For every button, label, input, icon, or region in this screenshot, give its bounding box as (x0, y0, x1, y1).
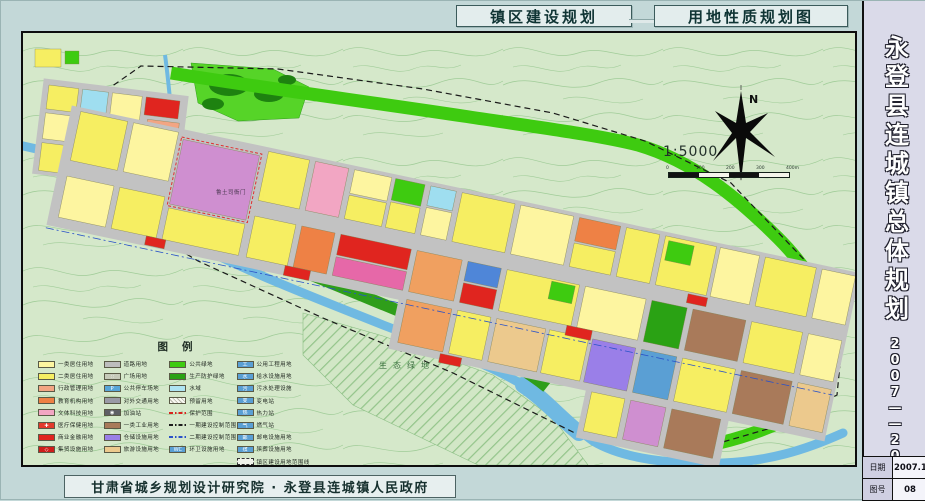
legend-column: 工公用工程用地水给水设施用地污污水处理设施变变电站热热力站气燃气站邮邮电设施用地… (237, 358, 313, 467)
legend-item: 镇区建设用地范围线 (237, 456, 313, 468)
legend-label: 二期建设控制范围 (189, 433, 236, 441)
legend-item: ∷广场用地 (104, 370, 170, 382)
legend-label: 行政管理用地 (58, 384, 93, 392)
scale-tick: 100 (696, 166, 705, 171)
scale-text: 1:5000 (663, 144, 718, 160)
legend-swatch: 污 (237, 385, 254, 392)
heritage-label: 鲁土司衙门 (216, 188, 246, 196)
legend-label: 公用工程用地 (257, 360, 292, 368)
legend-label: 公共停车场地 (124, 384, 159, 392)
legend-item: 殡殡葬设施用地 (237, 443, 313, 455)
plan-title-vertical: 永登县连城镇总体规划 (878, 35, 913, 325)
legend-swatch: 热 (237, 409, 254, 416)
scale-bar-segments (668, 172, 790, 178)
legend-swatch: ◉ (104, 409, 121, 416)
legend-item: 变变电站 (237, 395, 313, 407)
legend-swatch (104, 434, 121, 441)
legend-item: 工公用工程用地 (237, 358, 313, 370)
title-right-box: 用地性质规划图 (654, 5, 848, 27)
legend-item: 预留用地 (169, 395, 236, 407)
legend-column: 道路用地∷广场用地P公共停车场地对外交通用地◉加油站一类工业用地仓储设施用地旅游… (104, 358, 170, 467)
legend-item: 一类工业用地 (104, 419, 170, 431)
legend-swatch (104, 446, 121, 453)
legend-label: 二类居住用地 (58, 372, 93, 380)
legend-column: 公共绿地生产防护绿地水域预留用地保护范围一期建设控制范围二期建设控制范围WC环卫… (169, 358, 236, 467)
legend-item: 仓储设施用地 (104, 431, 170, 443)
sheet-number-label: 图号 (863, 479, 893, 501)
legend-swatch (169, 385, 186, 392)
scale-tick: 200 (726, 166, 735, 171)
legend-label: 生产防护绿地 (189, 372, 224, 380)
scale-bar-ticks: 0100200300400m (668, 166, 792, 172)
legend-swatch: 水 (237, 373, 254, 380)
legend-label: 教育机构用地 (58, 397, 93, 405)
legend-label: 一类工业用地 (124, 421, 159, 429)
sheet-info-table: 日期 2007.11 图号 08 (862, 456, 925, 501)
legend-swatch (104, 422, 121, 429)
legend-item: WC环卫设施用地 (169, 443, 236, 455)
legend-label: 保护范围 (189, 409, 213, 417)
eco-green-label: 生态绿地 (379, 360, 435, 371)
legend-swatch (237, 458, 254, 465)
legend-title: 图例 (38, 339, 312, 354)
legend-label: 燃气站 (257, 421, 275, 429)
legend-item: ◉加油站 (104, 407, 170, 419)
legend-column: 一类居住用地二类居住用地行政管理用地教育机构用地文体科技用地✚医疗保健用地商业金… (38, 358, 104, 467)
legend-label: 医疗保健用地 (58, 421, 93, 429)
legend-swatch: P (104, 385, 121, 392)
legend-label: 环卫设施用地 (189, 445, 224, 453)
legend-item: 污污水处理设施 (237, 382, 313, 394)
legend-label: 集贸设施用地 (58, 445, 93, 453)
legend-item: 教育机构用地 (38, 395, 104, 407)
legend-label: 变电站 (257, 397, 275, 405)
legend-item: 生产防护绿地 (169, 370, 236, 382)
map-title: 用地性质规划图 (688, 6, 814, 27)
legend-columns: 一类居住用地二类居住用地行政管理用地教育机构用地文体科技用地✚医疗保健用地商业金… (38, 358, 312, 467)
table-row: 图号 08 (863, 479, 925, 501)
legend-item: 水给水设施用地 (237, 370, 313, 382)
legend-swatch (38, 361, 55, 368)
legend-swatch: 殡 (237, 446, 254, 453)
legend-swatch: 变 (237, 397, 254, 404)
legend-swatch (169, 436, 186, 438)
legend-item: 二类居住用地 (38, 370, 104, 382)
scale-bar: 0100200300400m (668, 166, 792, 180)
scale-tick: 300 (756, 166, 765, 171)
legend-swatch (38, 409, 55, 416)
legend-item: 气燃气站 (237, 419, 313, 431)
legend-item: 对外交通用地 (104, 395, 170, 407)
legend-label: 文体科技用地 (58, 409, 93, 417)
legend-item: ✚医疗保健用地 (38, 419, 104, 431)
scale-tick: 400m (786, 166, 799, 171)
legend-item: 道路用地 (104, 358, 170, 370)
date-value: 2007.11 (893, 457, 925, 479)
legend-swatch: ◇ (38, 446, 55, 453)
date-label: 日期 (863, 457, 893, 479)
legend-item: 邮邮电设施用地 (237, 431, 313, 443)
legend-item: 水域 (169, 382, 236, 394)
map-frame: 鲁土司衙门 生态绿地 1:5000 N 0100200300400m 图例 一类… (21, 31, 857, 467)
legend-swatch (104, 361, 121, 368)
legend-swatch (38, 397, 55, 404)
legend-item: 热热力站 (237, 407, 313, 419)
north-label: N (749, 93, 758, 106)
legend-label: 邮电设施用地 (257, 433, 292, 441)
scale-tick: 0 (666, 166, 669, 171)
legend-label: 预留用地 (189, 397, 213, 405)
legend-label: 污水处理设施 (257, 384, 292, 392)
sidebar: 永登县连城镇总体规划 2007——2020 日期 2007.11 图号 08 (862, 1, 925, 501)
page-title: 镇区建设规划 (490, 6, 598, 27)
legend-item: 商业金融用地 (38, 431, 104, 443)
legend-label: 对外交通用地 (124, 397, 159, 405)
legend-swatch (169, 412, 186, 414)
legend-swatch (169, 361, 186, 368)
legend-label: 加油站 (124, 409, 142, 417)
legend-label: 广场用地 (124, 372, 148, 380)
legend-item: ◇集贸设施用地 (38, 443, 104, 455)
legend-item: 文体科技用地 (38, 407, 104, 419)
credit-bar: 甘肃省城乡规划设计研究院 · 永登县连城镇人民政府 (64, 475, 456, 498)
legend-label: 殡葬设施用地 (257, 445, 292, 453)
legend-swatch: 气 (237, 422, 254, 429)
legend-swatch (104, 397, 121, 404)
legend-label: 旅游设施用地 (124, 445, 159, 453)
legend-label: 给水设施用地 (257, 372, 292, 380)
legend-item: 保护范围 (169, 407, 236, 419)
legend-label: 一期建设控制范围 (189, 421, 236, 429)
legend-item: 一类居住用地 (38, 358, 104, 370)
legend-label: 道路用地 (124, 360, 148, 368)
credit-text: 甘肃省城乡规划设计研究院 · 永登县连城镇人民政府 (91, 477, 429, 496)
legend-item: P公共停车场地 (104, 382, 170, 394)
legend-label: 水域 (189, 384, 201, 392)
title-left-box: 镇区建设规划 (456, 5, 632, 27)
legend-swatch (169, 424, 186, 426)
plan-sheet: 镇区建设规划 用地性质规划图 (0, 0, 925, 500)
table-row: 日期 2007.11 (863, 457, 925, 479)
legend-swatch (38, 385, 55, 392)
legend-item: 二期建设控制范围 (169, 431, 236, 443)
legend-label: 公共绿地 (189, 360, 213, 368)
legend-swatch (38, 434, 55, 441)
legend-item: 行政管理用地 (38, 382, 104, 394)
legend-label: 镇区建设用地范围线 (257, 458, 310, 466)
legend-swatch (169, 373, 186, 380)
legend-label: 一类居住用地 (58, 360, 93, 368)
legend-item: 旅游设施用地 (104, 443, 170, 455)
legend-swatch: 工 (237, 361, 254, 368)
legend-label: 仓储设施用地 (124, 433, 159, 441)
legend-swatch (169, 397, 186, 404)
legend-swatch: ✚ (38, 422, 55, 429)
legend-item: 公共绿地 (169, 358, 236, 370)
legend-label: 热力站 (257, 409, 275, 417)
legend: 图例 一类居住用地二类居住用地行政管理用地教育机构用地文体科技用地✚医疗保健用地… (38, 339, 312, 467)
legend-swatch: WC (169, 446, 186, 453)
sheet-number-value: 08 (893, 479, 925, 501)
legend-swatch: 邮 (237, 434, 254, 441)
legend-label: 商业金融用地 (58, 433, 93, 441)
legend-swatch: ∷ (104, 373, 121, 380)
title-connector (629, 19, 657, 23)
legend-item: 一期建设控制范围 (169, 419, 236, 431)
legend-swatch (38, 373, 55, 380)
